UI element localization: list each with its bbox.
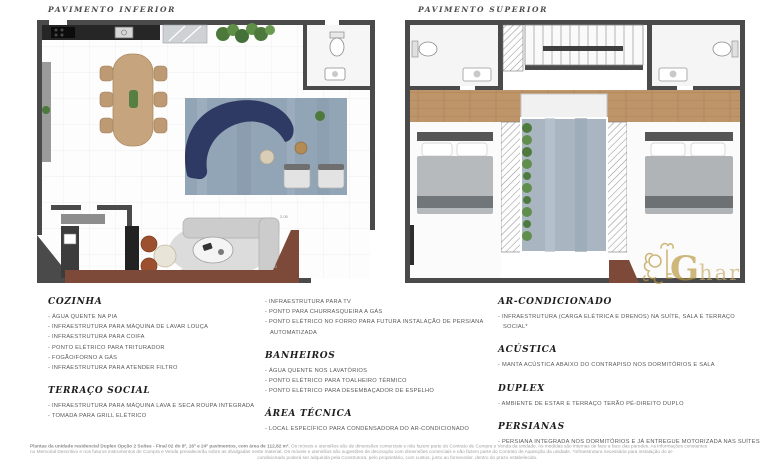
- feature-item: - INFRAESTRUTURA PARA TV: [265, 297, 493, 307]
- section-heading: COZINHA: [48, 297, 263, 307]
- feature-item: - INFRAESTRUTURA (CARGA ELÉTRICA E DRENO…: [498, 312, 760, 332]
- floor-plan-inferior-drawing: 2.05 6.10: [37, 20, 375, 285]
- dimension-label: 2.05: [280, 214, 289, 219]
- section-heading: DUPLEX: [498, 384, 760, 394]
- feature-item: - PONTO ELÉTRICO PARA TOALHEIRO TÉRMICO: [265, 376, 493, 386]
- disclaimer-line-3: condicionado poderá ser adquirida pela C…: [30, 454, 765, 460]
- feature-item: - INFRAESTRUTURA PARA ATENDER FILTRO: [48, 363, 263, 373]
- bathroom-right: [652, 25, 740, 86]
- plant: [315, 111, 325, 121]
- void-opening: [521, 94, 607, 252]
- armchair: [154, 245, 176, 267]
- features-column-3: AR-CONDICIONADO- INFRAESTRUTURA (CARGA E…: [498, 297, 760, 447]
- bathroom: [307, 25, 370, 86]
- counter: [61, 214, 105, 224]
- staircase: [525, 25, 643, 65]
- bedroom-right: [627, 122, 740, 278]
- dimension-label: 6.10: [269, 264, 278, 269]
- chair: [141, 236, 157, 252]
- bedroom-left: [410, 122, 501, 278]
- plant: [42, 106, 50, 114]
- feature-item: - PONTO ELÉTRICO PARA TRITURADOR: [48, 343, 263, 353]
- feature-item: - ÁGUA QUENTE NOS LAVATÓRIOS: [265, 366, 493, 376]
- disclaimer-text: Os móveis e utensílios são de dimensões …: [290, 443, 707, 449]
- coffee-table-lower: [193, 237, 233, 263]
- feature-item: - INFRAESTRUTURA PARA MÁQUINA DE LAVAR L…: [48, 322, 263, 332]
- closet: [501, 122, 521, 252]
- feature-item: - ÁGUA QUENTE NA PIA: [48, 312, 263, 322]
- feature-item: - MANTA ACÚSTICA ABAIXO DO CONTRAPISO NO…: [498, 360, 760, 370]
- section-heading: ÁREA TÉCNICA: [265, 409, 493, 419]
- dining-table: [100, 54, 167, 146]
- feature-item: - PONTO ELÉTRICO NO FORRO PARA FUTURA IN…: [265, 317, 493, 337]
- closet: [503, 25, 523, 71]
- feature-item: - INFRAESTRUTURA PARA COIFA: [48, 332, 263, 342]
- section-heading: AR-CONDICIONADO: [498, 297, 760, 307]
- disclaimer-title: Plantas da unidade residencial Duplex Op…: [30, 443, 290, 449]
- section-heading: TERRAÇO SOCIAL: [48, 386, 263, 396]
- floor-plan-superior-drawing: [405, 20, 745, 285]
- brochure-page: PAVIMENTO INFERIOR PAVIMENTO SUPERIOR: [0, 0, 768, 473]
- coffee-table: [260, 150, 274, 164]
- feature-item: - LOCAL ESPECÍFICO PARA CONDENSADORA DO …: [265, 424, 493, 434]
- features-column-2: - INFRAESTRUTURA PARA TV- PONTO PARA CHU…: [265, 297, 493, 435]
- sink: [64, 234, 76, 244]
- feature-item: - FOGÃO/FORNO A GÁS: [48, 353, 263, 363]
- section-heading: BANHEIROS: [265, 351, 493, 361]
- door-gap: [49, 20, 67, 25]
- feature-item: - AMBIENTE DE ESTAR E TERRAÇO TERÃO PÉ-D…: [498, 399, 760, 409]
- door-gap: [325, 20, 339, 25]
- closet: [607, 122, 627, 252]
- plan-title-superior: PAVIMENTO SUPERIOR: [418, 5, 548, 14]
- feature-item: - PONTO ELÉTRICO PARA DESEMBAÇADOR DE ES…: [265, 386, 493, 396]
- features-column-1: COZINHA- ÁGUA QUENTE NA PIA- INFRAESTRUT…: [48, 297, 263, 422]
- plan-title-inferior: PAVIMENTO INFERIOR: [48, 5, 176, 14]
- section-heading: ACÚSTICA: [498, 345, 760, 355]
- bathroom-left: [410, 25, 498, 86]
- side-table: [295, 142, 307, 154]
- section-heading: PERSIANAS: [498, 422, 760, 432]
- feature-item: - PONTO PARA CHURRASQUEIRA A GÁS: [265, 307, 493, 317]
- legal-disclaimer: Plantas da unidade residencial Duplex Op…: [30, 443, 765, 460]
- feature-item: - TOMADA PARA GRILL ELÉTRICO: [48, 411, 263, 421]
- feature-item: - INFRAESTRUTURA PARA MÁQUINA LAVA E SEC…: [48, 401, 263, 411]
